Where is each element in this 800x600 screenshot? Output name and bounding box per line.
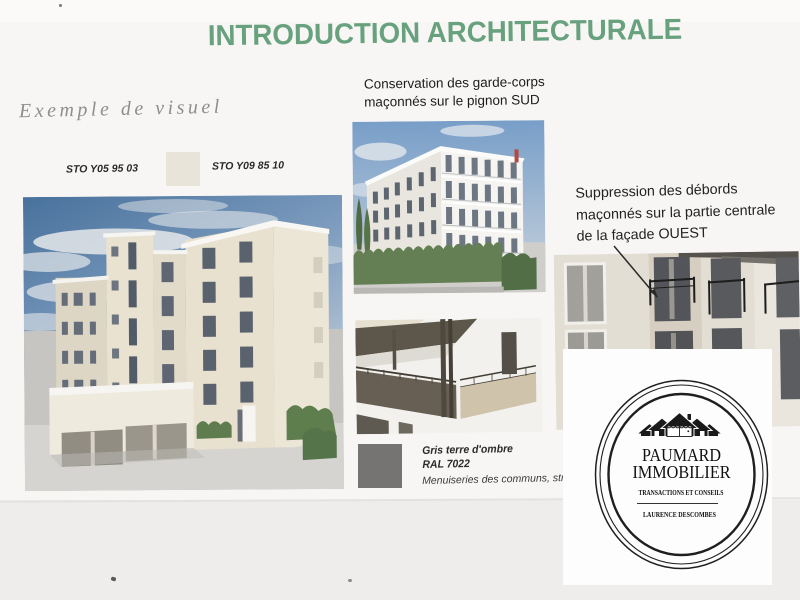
svg-text:LAURENCE DESCOMBES: LAURENCE DESCOMBES [643, 510, 716, 519]
svg-text:IMMOBILIER: IMMOBILIER [633, 462, 731, 482]
svg-text:TRANSACTIONS ET CONSEILS: TRANSACTIONS ET CONSEILS [639, 488, 724, 497]
